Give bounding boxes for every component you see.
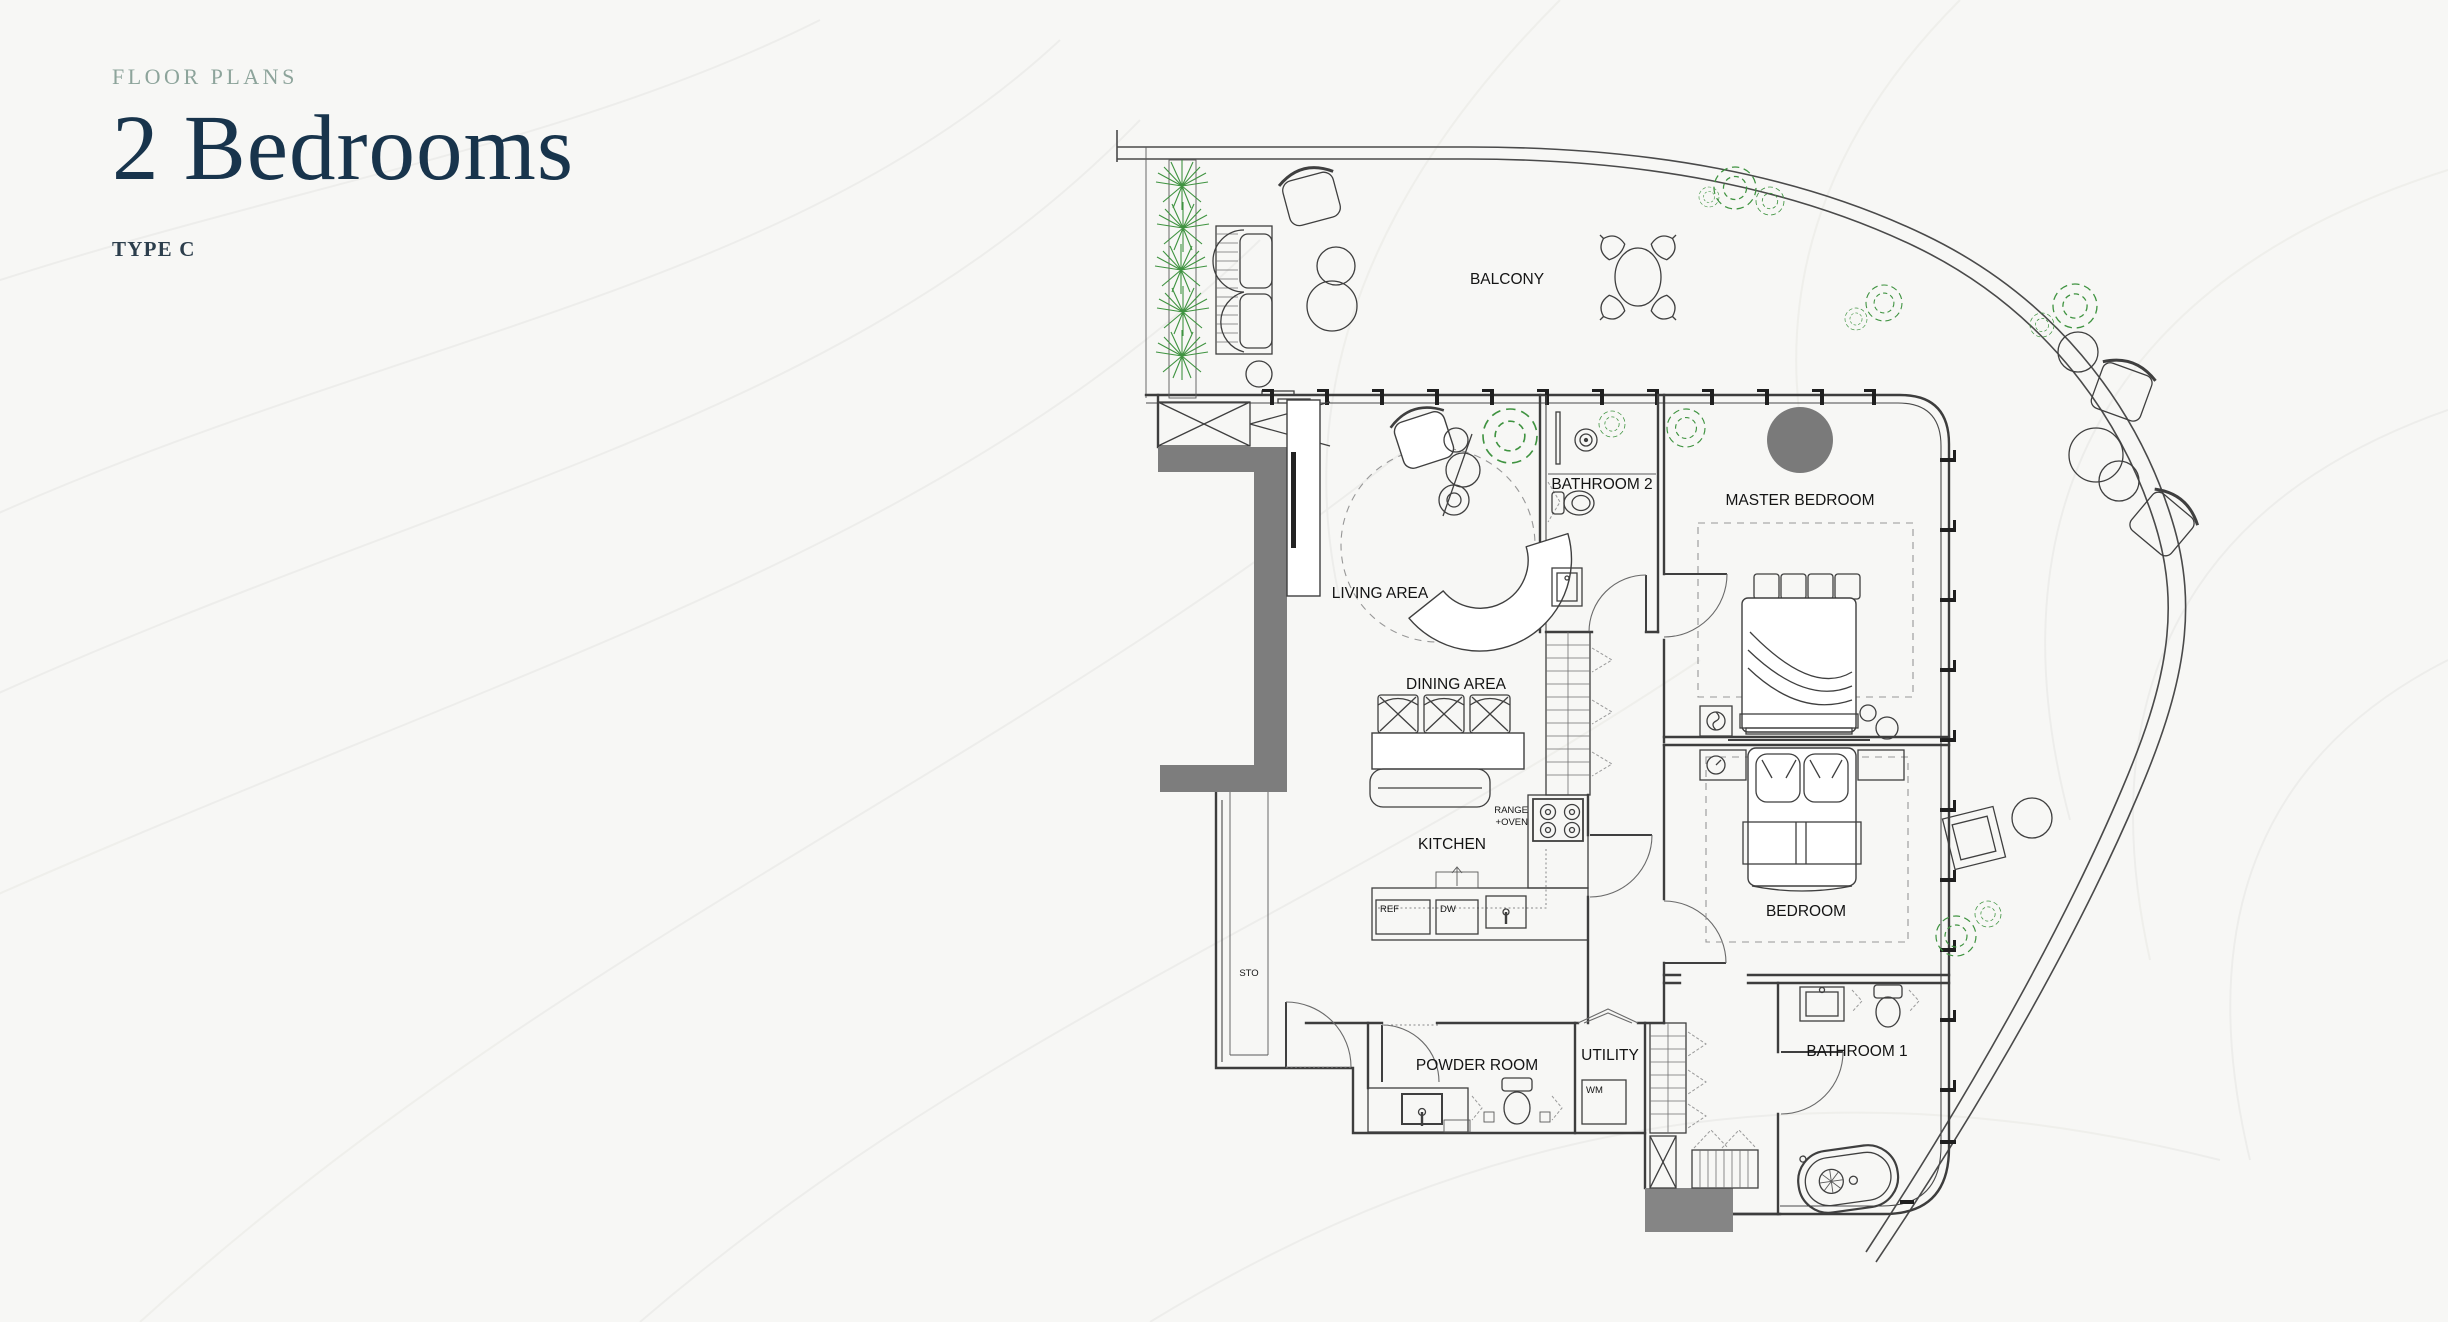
floor-plan-drawing: STO: [1080, 70, 2320, 1320]
bedroom-nightstand-right: [1858, 750, 1904, 780]
bath1-vanity: [1800, 987, 1844, 1021]
bedroom-label: BEDROOM: [1766, 903, 1846, 920]
utility-room: WM UTILITY: [1581, 1047, 1639, 1124]
bathroom2-door: [1589, 575, 1646, 632]
balcony-pot: [1246, 361, 1272, 387]
bedroom-bed: [1743, 748, 1861, 891]
kitchen-label: KITCHEN: [1418, 836, 1486, 853]
bathroom2-label: BATHROOM 2: [1551, 476, 1652, 493]
dw-label: DW: [1440, 904, 1456, 915]
utility-label: UTILITY: [1581, 1047, 1639, 1064]
unit-type-label: TYPE C: [112, 237, 574, 262]
terrace-furniture-right: [2058, 332, 2203, 560]
wardrobe-corridor: [1546, 632, 1612, 795]
balcony-side-tables: [1307, 247, 1357, 331]
master-bed: [1728, 574, 1870, 740]
gray-service-block: [1645, 1188, 1733, 1232]
balcony-label: BALCONY: [1470, 271, 1544, 288]
powder-label: POWDER ROOM: [1416, 1057, 1538, 1074]
tv-feature-wall: [1287, 400, 1320, 596]
dining-bench: [1370, 769, 1490, 807]
living-area: LIVING AREA: [1332, 401, 1602, 683]
master-bedroom: MASTER BEDROOM: [1698, 492, 1913, 740]
powder-room: POWDER ROOM: [1368, 1057, 1562, 1132]
washing-machine: WM: [1582, 1080, 1626, 1124]
dining-area: DINING AREA: [1370, 676, 1524, 807]
wardrobe-hall: [1650, 1023, 1706, 1133]
wardrobe-bath1: [1692, 1130, 1758, 1188]
bath2-shower-head: [1575, 429, 1597, 451]
bathroom1-door: [1781, 1052, 1843, 1114]
powder-toilet: [1502, 1078, 1532, 1124]
sto-label: STO: [1239, 968, 1258, 979]
master-bedroom-door: [1664, 574, 1727, 637]
bathtub: [1794, 1141, 1902, 1216]
cooktop: [1533, 799, 1583, 841]
bath1-toilet: [1874, 985, 1902, 1027]
bedroom-nightstand-left: [1700, 750, 1746, 780]
bath2-toilet: [1552, 491, 1594, 515]
floor-plan-page: FLOOR PLANS 2 Bedrooms TYPE C: [0, 0, 2448, 1322]
master-nightstand: [1860, 705, 1898, 739]
refrigerator: REF: [1376, 900, 1430, 934]
storage-closet: [1230, 792, 1268, 1055]
bathroom1-label: BATHROOM 1: [1806, 1043, 1907, 1060]
terrace-furniture-bottom: [1942, 798, 2052, 870]
wardrobes: [1546, 632, 1758, 1188]
wm-label: WM: [1586, 1085, 1603, 1096]
curved-sofa: [1405, 527, 1602, 683]
dining-label: DINING AREA: [1406, 676, 1507, 693]
living-armchair: [1387, 401, 1458, 472]
range-label-2: +OVEN: [1496, 817, 1529, 828]
dining-chairs: [1378, 695, 1510, 733]
kitchen-counter: [1372, 888, 1588, 940]
balcony: BALCONY: [1155, 160, 1684, 398]
dishwasher: DW: [1436, 900, 1478, 934]
balcony-lounge-chair: [1276, 162, 1344, 229]
balcony-dining-set: [1592, 227, 1684, 328]
core-walls: STO: [1158, 400, 1330, 1055]
balcony-sofa: [1213, 226, 1272, 354]
gray-tree-canopy: [1767, 407, 1833, 473]
kitchen: REF DW RANGE +OVEN KITCHEN: [1372, 795, 1588, 940]
mullion-ticks-right: [1900, 450, 1956, 1204]
kitchen-door: [1590, 835, 1652, 897]
page-title: 2 Bedrooms: [112, 102, 574, 195]
headline-block: FLOOR PLANS 2 Bedrooms TYPE C: [112, 64, 574, 262]
powder-vanity: [1368, 1088, 1468, 1132]
master-label: MASTER BEDROOM: [1726, 492, 1875, 509]
kitchen-sink: [1486, 896, 1526, 928]
entry-door: [1286, 1002, 1351, 1067]
master-ac-unit: [1700, 706, 1732, 736]
ref-label: REF: [1380, 904, 1399, 915]
tv-screen: [1291, 452, 1296, 548]
bath2-mirror: [1556, 412, 1560, 464]
bedroom-door: [1664, 901, 1726, 963]
bedroom: BEDROOM: [1700, 748, 1908, 942]
range-label-1: RANGE: [1494, 805, 1528, 816]
powder-step: [1444, 1120, 1470, 1132]
kitchen-hood: [1436, 867, 1478, 888]
shaft-small: [1650, 1136, 1676, 1188]
gray-core-wall: [1158, 447, 1287, 792]
dining-table: [1372, 733, 1524, 769]
living-label: LIVING AREA: [1332, 585, 1429, 602]
bathroom-1: BATHROOM 1: [1794, 985, 1919, 1217]
planter: [1155, 160, 1209, 398]
section-eyebrow: FLOOR PLANS: [112, 64, 574, 90]
